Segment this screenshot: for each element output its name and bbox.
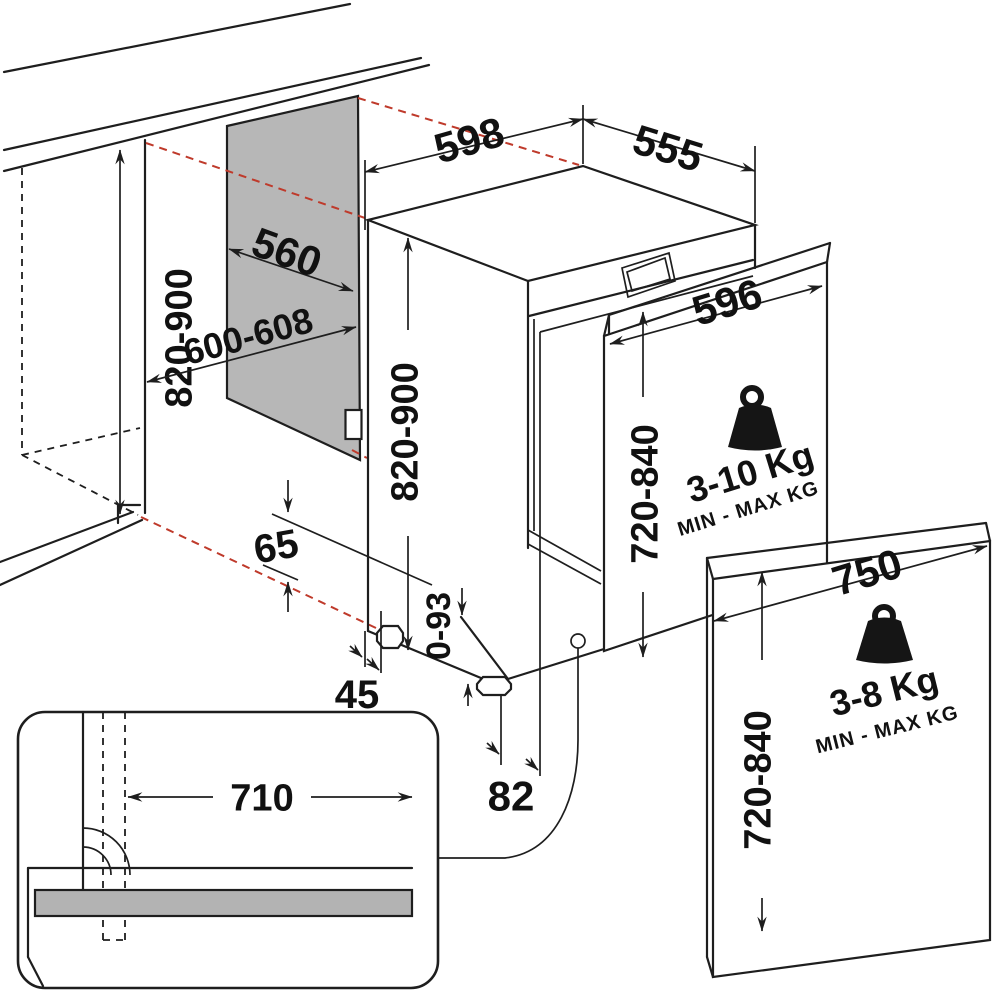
drain-hose-outlet bbox=[571, 634, 585, 648]
panel-750-height-label: 720-840 bbox=[737, 710, 779, 849]
drain-arrow2 bbox=[526, 759, 538, 770]
worktop-back-edge-line bbox=[4, 4, 350, 72]
dishwasher-width-label: 598 bbox=[429, 108, 509, 172]
installation-diagram: 820-900 600-608 560 598 555 bbox=[0, 0, 1000, 1000]
plinth-board bbox=[35, 890, 412, 916]
side-clearance-arrow2 bbox=[367, 659, 379, 670]
drain-position-label: 82 bbox=[488, 773, 535, 820]
adjustable-foot-front bbox=[477, 677, 511, 695]
door-panel-xl: 750 720-840 3-8 Kg MIN - MAX KG bbox=[707, 523, 990, 977]
plinth-detail-inset: 710 bbox=[18, 712, 438, 988]
plinth-cutout-label: 710 bbox=[230, 777, 293, 819]
dishwasher-top-face bbox=[368, 166, 755, 281]
drain-arrow1 bbox=[487, 743, 499, 754]
kitchen-cabinet bbox=[0, 4, 429, 585]
diagram-canvas: 820-900 600-608 560 598 555 bbox=[0, 0, 1000, 1000]
toe-kick-edge-front bbox=[508, 649, 604, 679]
side-clearance-arrow1 bbox=[350, 646, 362, 657]
side-clearance-label: 45 bbox=[335, 673, 380, 717]
dishwasher-height-label: 820-900 bbox=[384, 362, 426, 501]
control-display-inner bbox=[627, 258, 670, 291]
floor-plinth-edge-line bbox=[0, 520, 142, 585]
dishwasher-depth-label: 555 bbox=[628, 115, 709, 180]
feet-height-label: 0-93 bbox=[420, 592, 458, 660]
inset-frame bbox=[18, 712, 438, 988]
panel-596-height-label: 720-840 bbox=[624, 424, 666, 563]
panel-thickness-edge bbox=[827, 243, 830, 262]
base-clearance-label: 65 bbox=[250, 521, 301, 572]
niche-panel-plinth-notch bbox=[346, 410, 362, 439]
panel-thickness-edge bbox=[986, 523, 990, 541]
niche-hidden-floor-edge-x bbox=[22, 428, 140, 455]
worktop-front-bottom-edge-line bbox=[4, 65, 429, 171]
toe-kick-edge-left bbox=[461, 617, 508, 679]
